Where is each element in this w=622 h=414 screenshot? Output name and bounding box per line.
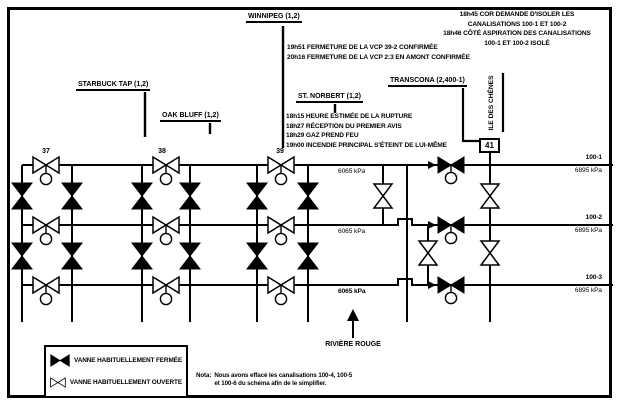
- st-norbert-label: ST. NORBERT (1,2): [296, 93, 363, 103]
- pipeline-100-2-label: 100-2: [556, 214, 602, 221]
- valve-39-line2-open-icon: [268, 217, 294, 245]
- valve-38-number: 38: [152, 148, 172, 155]
- ile-des-chenes-label: ILE DES CHÊNES: [488, 72, 500, 134]
- closed-valve-icon: [180, 183, 200, 209]
- closed-valve-icon: [132, 243, 152, 269]
- pressure-upstream-100-2: 6065 kPa: [338, 228, 365, 235]
- pipeline-schematic: 18h45 COR DEMANDE D'ISOLER LES CANALISAT…: [0, 0, 622, 414]
- open-crossover-valve-icon: [374, 184, 392, 208]
- legend-open-label: VANNE HABITUELLEMENT OUVERTE: [70, 379, 182, 386]
- valve-37-line1-open-icon: [33, 157, 59, 185]
- riviere-rouge-label: RIVIÈRE ROUGE: [318, 341, 388, 348]
- valve-39-line3-open-icon: [268, 277, 294, 305]
- vcp-closed-valve-line3-icon: [428, 277, 464, 304]
- nota-label: Nota:: [196, 372, 211, 387]
- nota-block: Nota: Nous avons effacé les canalisation…: [196, 372, 352, 387]
- pipeline-100-3-label: 100-3: [556, 274, 602, 281]
- valve-37-line3-open-icon: [33, 277, 59, 305]
- vcp-closed-valve-line2-icon: [428, 217, 464, 244]
- closed-valve-icon: [12, 183, 32, 209]
- log-line: 19h00 INCENDIE PRINCIPAL S'ÉTEINT DE LUI…: [286, 141, 447, 151]
- pressure-downstream-100-2: 6895 kPa: [556, 227, 602, 234]
- open-crossover-valve-icon: [481, 184, 499, 208]
- open-valve-icon: [50, 375, 66, 390]
- log-line: 19h51 FERMETURE DE LA VCP 39-2 CONFIRMÉE: [287, 43, 470, 53]
- legend-row-closed: VANNE HABITUELLEMENT FERMÉE: [50, 353, 182, 368]
- rupture-event-log: 18h15 HEURE ESTIMÉE DE LA RUPTURE 18h27 …: [286, 112, 447, 150]
- closed-valve-icon: [298, 243, 318, 269]
- valve-38-line1-open-icon: [153, 157, 179, 185]
- log-line: 18h45 COR DEMANDE D'ISOLER LES: [420, 10, 614, 20]
- closed-valve-icon: [132, 183, 152, 209]
- log-line: 20h16 FERMETURE DE LA VCP 2:3 EN AMONT C…: [287, 53, 470, 63]
- log-line: CANALISATIONS 100-1 ET 100-2: [420, 20, 614, 30]
- valve-37-number: 37: [36, 148, 56, 155]
- nota-line: et 100-6 du schéma afin de le simplifier…: [214, 380, 352, 388]
- log-line: 18h15 HEURE ESTIMÉE DE LA RUPTURE: [286, 112, 447, 122]
- closed-valve-icon: [247, 243, 267, 269]
- closed-valve-icon: [62, 243, 82, 269]
- vcp-closed-valve-line1-icon: [428, 157, 464, 184]
- pressure-upstream-100-1: 6065 kPa: [338, 168, 365, 175]
- oak-bluff-label: OAK BLUFF (1,2): [160, 112, 221, 122]
- closed-valve-icon: [180, 243, 200, 269]
- pipeline-100-3-line: [22, 279, 613, 285]
- starbuck-tap-label: STARBUCK TAP (1,2): [76, 81, 150, 91]
- open-crossover-valve-icon: [419, 241, 437, 265]
- valve-38-line2-open-icon: [153, 217, 179, 245]
- valve-38-line3-open-icon: [153, 277, 179, 305]
- closed-valve-icon: [298, 183, 318, 209]
- closed-valve-icon: [62, 183, 82, 209]
- nota-line: Nous avons effacé les canalisations 100-…: [214, 372, 352, 380]
- closed-valve-icon: [247, 183, 267, 209]
- transcona-leader-line: [463, 88, 479, 141]
- pipeline-100-1-label: 100-1: [556, 154, 602, 161]
- winnipeg-label: WINNIPEG (1,2): [246, 13, 302, 23]
- legend-row-open: VANNE HABITUELLEMENT OUVERTE: [50, 375, 182, 390]
- open-crossover-valve-icon: [481, 241, 499, 265]
- legend-box: VANNE HABITUELLEMENT FERMÉE VANNE HABITU…: [44, 345, 188, 398]
- valve-39-number: 39: [270, 148, 290, 155]
- pressure-upstream-100-3: 6065 kPa: [338, 288, 365, 295]
- legend-closed-label: VANNE HABITUELLEMENT FERMÉE: [74, 357, 182, 364]
- vcp-closure-log: 19h51 FERMETURE DE LA VCP 39-2 CONFIRMÉE…: [287, 43, 470, 62]
- log-line: 18h27 RÉCEPTION DU PREMIER AVIS: [286, 122, 447, 132]
- closed-valve-icon: [50, 353, 70, 368]
- log-line: 18h29 GAZ PREND FEU: [286, 131, 447, 141]
- pipeline-100-2-line: [22, 219, 613, 225]
- riviere-rouge-arrow: [347, 309, 359, 338]
- closed-valve-icon: [12, 243, 32, 269]
- valve-39-line1-open-icon: [268, 157, 294, 185]
- valve-41-tag: 41: [479, 138, 500, 153]
- pressure-downstream-100-3: 6895 kPa: [556, 287, 602, 294]
- valve-37-line2-open-icon: [33, 217, 59, 245]
- log-line: 18h46 CÔTÉ ASPIRATION DES CANALISATIONS: [420, 29, 614, 39]
- pressure-downstream-100-1: 6895 kPa: [556, 167, 602, 174]
- transcona-label: TRANSCONA (2,400-1): [388, 77, 467, 87]
